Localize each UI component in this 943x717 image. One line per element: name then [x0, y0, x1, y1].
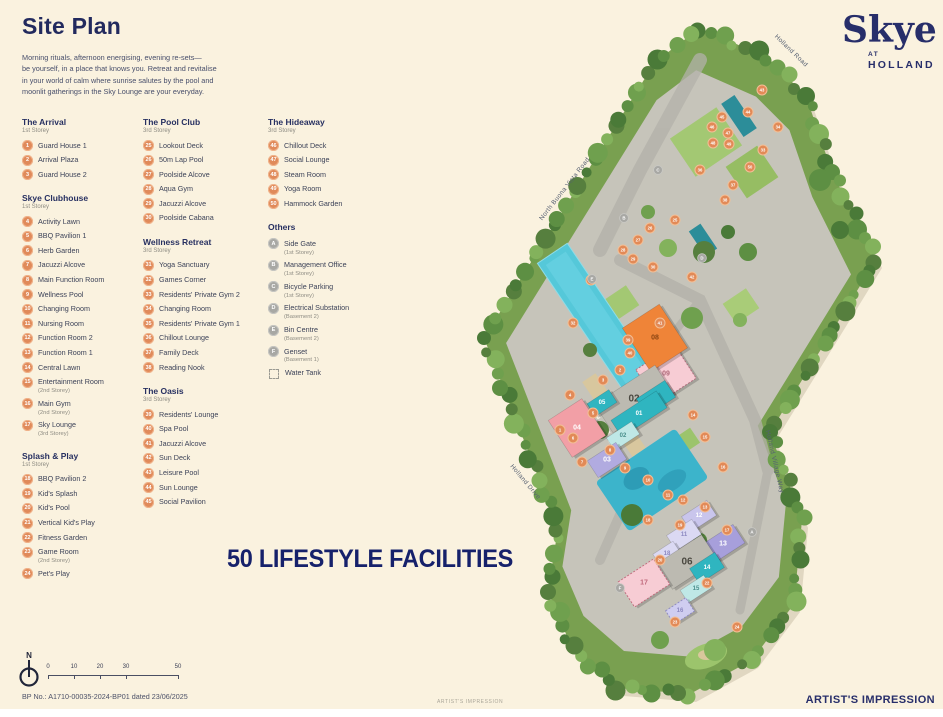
- legend-item-label: Main Function Room: [38, 275, 104, 285]
- svg-text:19: 19: [678, 523, 683, 528]
- scale-tick: [100, 675, 101, 679]
- legend-marker: 19: [22, 488, 33, 499]
- facility-dot-27: [633, 235, 643, 245]
- block-06: 06: [656, 534, 721, 592]
- legend-item: 27Poolside Alcove: [143, 169, 265, 180]
- legend-item: 29Jacuzzi Alcove: [143, 198, 265, 209]
- svg-text:C: C: [656, 168, 660, 173]
- legend-marker: 42: [143, 453, 154, 464]
- legend-marker: 41: [143, 438, 154, 449]
- scale-tick-label: 50: [175, 664, 182, 670]
- legend-item-label: BBQ Pavilion 2: [38, 474, 86, 484]
- legend-item: 18BBQ Pavilion 2: [22, 474, 140, 485]
- legend-item-label: Guard House 2: [38, 169, 87, 179]
- legend-item-label: Yoga Sanctuary: [159, 260, 209, 270]
- facility-dot-48: [708, 138, 718, 148]
- legend-marker: 9: [22, 289, 33, 300]
- svg-text:N: N: [26, 651, 32, 660]
- legend-marker: B: [268, 260, 279, 271]
- facility-dot-44: [743, 107, 753, 117]
- facility-dot-36: [695, 165, 705, 175]
- facility-dot-5: [588, 408, 598, 418]
- legend-item: 19Kid's Splash: [22, 488, 140, 499]
- residential-blocks: 090802100501040203121113180614151716: [548, 303, 748, 627]
- legend-item-label: Poolside Cabana: [159, 213, 214, 223]
- svg-text:16: 16: [677, 608, 684, 614]
- svg-text:13: 13: [703, 505, 708, 510]
- svg-text:20: 20: [658, 558, 663, 563]
- legend-marker: 8: [22, 275, 33, 286]
- road-label: Holland Road: [773, 33, 809, 68]
- svg-text:11: 11: [681, 532, 688, 538]
- legend-marker: 7: [22, 260, 33, 271]
- svg-text:22: 22: [705, 581, 710, 586]
- svg-text:45: 45: [720, 115, 725, 120]
- legend-marker: 22: [22, 532, 33, 543]
- facility-dot-17: [722, 525, 732, 535]
- svg-text:09: 09: [662, 371, 670, 378]
- artist-impression-label: ARTIST'S IMPRESSION: [806, 694, 935, 706]
- legend-item-label: Vertical Kid's Play: [38, 518, 95, 528]
- facility-dot-1: [555, 425, 565, 435]
- legend-item-label: Water Tank: [285, 368, 321, 378]
- page-title: Site Plan: [22, 13, 121, 40]
- legend-item-note: (3rd Storey): [38, 431, 76, 438]
- legend-item: 44Sun Lounge: [143, 482, 265, 493]
- legend-marker: 17: [22, 420, 33, 431]
- block-01: 01: [611, 390, 670, 440]
- legend-item-label: Residents' Private Gym 1: [159, 318, 240, 328]
- legend-item: 36Chillout Lounge: [143, 333, 265, 344]
- svg-text:23: 23: [673, 620, 678, 625]
- legend-marker: 23: [22, 547, 33, 558]
- scale-tick-label: 0: [46, 664, 49, 670]
- artist-impression-note: ARTIST'S IMPRESSION: [437, 699, 503, 705]
- legend-group-title: Splash & Play: [22, 451, 140, 461]
- intro-text: Morning rituals, afternoon energising, e…: [22, 52, 252, 97]
- svg-text:02: 02: [620, 433, 627, 439]
- legend-item: 31Yoga Sanctuary: [143, 260, 265, 271]
- facility-dot-50: [745, 162, 755, 172]
- svg-text:34: 34: [776, 125, 781, 130]
- facility-dot-14: [688, 410, 698, 420]
- legend-item-note: (1st Storey): [284, 250, 316, 257]
- legend-item: 3Guard House 2: [22, 169, 140, 180]
- facility-dot-8: [605, 445, 615, 455]
- tree-border: [477, 23, 882, 705]
- facility-dot-40: [625, 348, 635, 358]
- legend-group-title: The Pool Club: [143, 117, 265, 127]
- legend-item-note: (Basement 2): [284, 314, 349, 321]
- legend-marker: 30: [143, 213, 154, 224]
- legend-item-other: ASide Gate(1st Storey): [268, 238, 396, 256]
- legend-marker: 33: [143, 289, 154, 300]
- legend-item: 39Residents' Lounge: [143, 409, 265, 420]
- svg-text:26: 26: [648, 226, 653, 231]
- other-marker-F: [616, 584, 625, 593]
- svg-text:27: 27: [636, 238, 641, 243]
- svg-text:12: 12: [681, 498, 686, 503]
- legend-marker: 16: [22, 398, 33, 409]
- legend-item: 13Function Room 1: [22, 348, 140, 359]
- svg-text:17: 17: [640, 580, 648, 587]
- road-label: Holland Village Way: [764, 429, 785, 494]
- facility-dot-4: [565, 390, 575, 400]
- legend-item-label: Hammock Garden: [284, 198, 342, 208]
- facility-dot-32: [568, 318, 578, 328]
- legend-item-label: Wellness Pool: [38, 289, 83, 299]
- legend-item-label: Nursing Room: [38, 318, 84, 328]
- road-labels: Holland RoadNorth Buona Vista RoadHollan…: [508, 33, 809, 501]
- facility-dot-6: [568, 433, 578, 443]
- lawns: [603, 107, 779, 675]
- legend-marker: 40: [143, 424, 154, 435]
- bottom-strip: [0, 709, 943, 717]
- block-12: 12: [682, 499, 720, 534]
- legend-group-title: The Oasis: [143, 386, 265, 396]
- legend-item-label: Bin Centre(Basement 2): [284, 325, 319, 343]
- legend-marker: 4: [22, 216, 33, 227]
- block-16: 16: [666, 597, 698, 627]
- legend-item: 17Sky Lounge(3rd Storey): [22, 420, 140, 438]
- svg-text:F: F: [619, 586, 622, 591]
- block-05: 05: [587, 389, 620, 419]
- logo: Skye AT HOLLAND: [842, 12, 938, 71]
- facility-dot-49: [724, 139, 734, 149]
- block-02: 02: [595, 364, 677, 435]
- legend-marker: 24: [22, 568, 33, 579]
- legend-item: 2Arrival Plaza: [22, 155, 140, 166]
- block-02: 02: [606, 420, 643, 453]
- legend-item-label: Genset(Basement 1): [284, 346, 319, 364]
- block-17: 17: [618, 558, 673, 610]
- legend-item-label: Arrival Plaza: [38, 155, 78, 165]
- facility-dot-10: [643, 475, 653, 485]
- svg-text:47: 47: [726, 131, 731, 136]
- block-18: 18: [653, 540, 685, 569]
- legend-item-other: DElectrical Substation(Basement 2): [268, 303, 396, 321]
- svg-text:46: 46: [710, 125, 715, 130]
- block-13: 13: [701, 523, 748, 566]
- legend-item: 11Nursing Room: [22, 318, 140, 329]
- svg-text:30: 30: [651, 265, 656, 270]
- legend-item-label: Central Lawn: [38, 362, 80, 372]
- road-label: North Buona Vista Road: [538, 156, 591, 221]
- legend-marker: 18: [22, 474, 33, 485]
- legend-item: 23Game Room(2nd Storey): [22, 547, 140, 565]
- facility-dot-16: [718, 462, 728, 472]
- legend-marker: 49: [268, 184, 279, 195]
- scale-tick: [178, 675, 179, 679]
- legend-item: 48Steam Room: [268, 169, 396, 180]
- legend-marker: 35: [143, 318, 154, 329]
- svg-text:03: 03: [603, 457, 611, 464]
- legend-marker: 36: [143, 333, 154, 344]
- svg-text:E: E: [591, 277, 594, 282]
- facility-dot-24: [732, 622, 742, 632]
- scale-tick-label: 30: [123, 664, 130, 670]
- legend-marker: C: [268, 281, 279, 292]
- legend-group: Splash & Play1st Storey18BBQ Pavilion 21…: [22, 451, 140, 580]
- facility-dot-33: [758, 145, 768, 155]
- svg-text:36: 36: [698, 168, 703, 173]
- legend-marker: 28: [143, 184, 154, 195]
- legend-item: 21Vertical Kid's Play: [22, 518, 140, 529]
- facility-dot-18: [643, 515, 653, 525]
- legend-item: 25Lookout Deck: [143, 140, 265, 151]
- svg-text:44: 44: [746, 110, 751, 115]
- facility-dot-7: [577, 457, 587, 467]
- legend-item-label: 50m Lap Pool: [159, 155, 203, 165]
- legend-item-other: CBicycle Parking(1st Storey): [268, 281, 396, 299]
- svg-text:40: 40: [628, 351, 633, 356]
- legend-item: 28Aqua Gym: [143, 184, 265, 195]
- north-arrow-icon: N: [16, 650, 42, 688]
- svg-text:15: 15: [703, 435, 708, 440]
- svg-text:48: 48: [711, 141, 716, 146]
- legend-item-label: Family Deck: [159, 348, 199, 358]
- legend-item: 46Chillout Deck: [268, 140, 396, 151]
- legend-item: 16Main Gym(2nd Storey): [22, 398, 140, 416]
- legend-marker: D: [268, 303, 279, 314]
- legend-group-storey: 1st Storey: [22, 128, 140, 134]
- logo-holland: HOLLAND: [868, 59, 938, 71]
- legend-item-label: Social Lounge: [284, 155, 330, 165]
- legend-item-note: (Basement 1): [284, 357, 319, 364]
- legend-marker: 21: [22, 518, 33, 529]
- legend-item-label: Entertainment Room(2nd Storey): [38, 377, 104, 395]
- bp-number: BP No.: A1710-00035-2024-BP01 dated 23/0…: [22, 692, 188, 701]
- svg-text:7: 7: [581, 460, 584, 465]
- legend-group-title: Wellness Retreat: [143, 237, 265, 247]
- legend-item: 5BBQ Pavilion 1: [22, 231, 140, 242]
- facility-dot-46: [707, 122, 717, 132]
- legend-item-label: Sky Lounge(3rd Storey): [38, 420, 76, 438]
- svg-text:16: 16: [721, 465, 726, 470]
- scale-tick: [48, 675, 49, 679]
- legend-item: 37Family Deck: [143, 348, 265, 359]
- block-10: 10: [636, 379, 679, 418]
- legend-item-label: Management Office(1st Storey): [284, 260, 347, 278]
- legend-group-title: Others: [268, 222, 396, 232]
- legend-item-label: Residents' Private Gym 2: [159, 289, 240, 299]
- svg-text:50: 50: [748, 165, 753, 170]
- block-14: 14: [690, 551, 728, 586]
- facility-dot-25: [670, 215, 680, 225]
- site-boundary: [484, 28, 876, 694]
- legend-marker: 34: [143, 304, 154, 315]
- svg-text:01: 01: [636, 411, 643, 417]
- legend-marker: 27: [143, 169, 154, 180]
- legend-column-3: The Hideaway3rd Storey46Chillout Deck47S…: [268, 117, 396, 392]
- svg-text:5: 5: [592, 411, 595, 416]
- svg-text:12: 12: [696, 513, 703, 519]
- legend-item-label: Aqua Gym: [159, 184, 193, 194]
- facility-markers: 4344454647484950343336373825262728293042…: [555, 85, 783, 632]
- block-03: 03: [587, 441, 630, 480]
- legend-column-2: The Pool Club3rd Storey25Lookout Deck265…: [143, 117, 265, 521]
- facility-dot-42: [687, 272, 697, 282]
- legend-marker: 5: [22, 231, 33, 242]
- facility-dot-12: [678, 495, 688, 505]
- pools: [537, 95, 756, 532]
- facility-dot-47: [723, 128, 733, 138]
- svg-text:17: 17: [725, 528, 730, 533]
- legend-group-storey: 3rd Storey: [143, 248, 265, 254]
- legend-item-label: Fitness Garden: [38, 532, 87, 542]
- svg-text:6: 6: [572, 436, 575, 441]
- legend-item-label: Bicycle Parking(1st Storey): [284, 281, 333, 299]
- legend-item-other: EBin Centre(Basement 2): [268, 325, 396, 343]
- legend-item-label: Game Room(2nd Storey): [38, 547, 79, 565]
- other-marker-D: [698, 254, 707, 263]
- legend-group-storey: 1st Storey: [22, 462, 140, 468]
- svg-text:4: 4: [569, 393, 572, 398]
- legend-item: 30Poolside Cabana: [143, 213, 265, 224]
- legend-marker: 29: [143, 198, 154, 209]
- svg-text:13: 13: [719, 541, 727, 548]
- legend-item-label: Jacuzzi Alcove: [38, 260, 85, 270]
- legend-marker: 3: [22, 169, 33, 180]
- block-09: 09: [636, 344, 700, 406]
- svg-text:49: 49: [727, 142, 732, 147]
- logo-at: AT: [868, 51, 938, 58]
- facilities-banner: 50 LIFESTYLE FACILITIES: [227, 545, 531, 574]
- facility-dot-11: [663, 490, 673, 500]
- legend-marker: 44: [143, 482, 154, 493]
- facility-dot-43: [757, 85, 767, 95]
- legend-item-label: Steam Room: [284, 169, 326, 179]
- legend-item-label: Sun Deck: [159, 453, 190, 463]
- legend-marker: 47: [268, 155, 279, 166]
- facility-dot-31: [586, 275, 596, 285]
- legend-marker: 45: [143, 497, 154, 508]
- legend-marker: 37: [143, 348, 154, 359]
- legend-item-other: FGenset(Basement 1): [268, 346, 396, 364]
- legend-item-label: Electrical Substation(Basement 2): [284, 303, 349, 321]
- svg-text:10: 10: [646, 478, 651, 483]
- legend-item-label: Chillout Deck: [284, 140, 326, 150]
- scale-tick: [126, 675, 127, 679]
- legend-group-title: Skye Clubhouse: [22, 193, 140, 203]
- legend-item-label: Yoga Room: [284, 184, 321, 194]
- svg-text:2: 2: [619, 368, 622, 373]
- internal-paths: [600, 60, 768, 610]
- legend-item: 12Function Room 2: [22, 333, 140, 344]
- svg-text:18: 18: [664, 551, 671, 557]
- legend-item-label: Reading Nook: [159, 362, 205, 372]
- legend-item: 14Central Lawn: [22, 362, 140, 373]
- svg-text:43: 43: [760, 88, 765, 93]
- legend-marker: 20: [22, 503, 33, 514]
- legend-item: 15Entertainment Room(2nd Storey): [22, 377, 140, 395]
- svg-text:11: 11: [666, 493, 671, 498]
- legend-item: 1Guard House 1: [22, 140, 140, 151]
- scale-bar: 010203050: [48, 664, 178, 684]
- legend-item-label: Jacuzzi Alcove: [159, 198, 206, 208]
- facility-dot-30: [648, 262, 658, 272]
- legend-group-storey: 3rd Storey: [143, 128, 265, 134]
- legend-item: 10Changing Room: [22, 304, 140, 315]
- legend-marker: 31: [143, 260, 154, 271]
- legend-item-label: Function Room 1: [38, 348, 93, 358]
- legend-item: 41Jacuzzi Alcove: [143, 438, 265, 449]
- svg-text:A: A: [750, 530, 754, 535]
- legend-item-label: Poolside Alcove: [159, 169, 210, 179]
- legend-item: 20Kid's Pool: [22, 503, 140, 514]
- legend-item-label: Residents' Lounge: [159, 409, 218, 419]
- legend-item: 22Fitness Garden: [22, 532, 140, 543]
- legend-item: 34Changing Room: [143, 304, 265, 315]
- block-11: 11: [667, 518, 705, 553]
- facility-dot-22: [702, 578, 712, 588]
- legend-item-note: (1st Storey): [284, 293, 333, 300]
- legend-marker: 38: [143, 362, 154, 373]
- north-indicator: N: [16, 650, 42, 688]
- legend-item: 49Yoga Room: [268, 184, 396, 195]
- svg-text:24: 24: [735, 625, 740, 630]
- legend-marker: 14: [22, 362, 33, 373]
- legend-marker: 25: [143, 140, 154, 151]
- facility-dot-2: [615, 365, 625, 375]
- legend-marker: 13: [22, 348, 33, 359]
- legend-item-label: Kid's Splash: [38, 488, 77, 498]
- svg-text:31: 31: [589, 278, 594, 283]
- other-marker-A: [748, 528, 757, 537]
- facility-dot-26: [645, 223, 655, 233]
- legend-item-note: (Basement 2): [284, 336, 319, 343]
- svg-text:B: B: [622, 216, 625, 221]
- svg-text:D: D: [700, 256, 703, 261]
- legend-marker: 43: [143, 468, 154, 479]
- svg-text:14: 14: [691, 413, 696, 418]
- legend-item: 32Games Corner: [143, 275, 265, 286]
- facility-dot-13: [700, 502, 710, 512]
- legend-item: 35Residents' Private Gym 1: [143, 318, 265, 329]
- road-label: Holland Drive: [508, 463, 541, 501]
- legend-group-title: The Arrival: [22, 117, 140, 127]
- legend-group: The Arrival1st Storey1Guard House 12Arri…: [22, 117, 140, 180]
- svg-text:25: 25: [673, 218, 678, 223]
- legend-item-label: Chillout Lounge: [159, 333, 209, 343]
- legend-item-label: Changing Room: [159, 304, 211, 314]
- svg-text:39: 39: [626, 338, 631, 343]
- site-plan-page: 0908021005010402031211131806141517164344…: [0, 0, 943, 717]
- svg-text:05: 05: [599, 400, 606, 406]
- facility-dot-3: [598, 375, 608, 385]
- legend-group: The Oasis3rd Storey39Residents' Lounge40…: [143, 386, 265, 508]
- scale-tick-label: 20: [97, 664, 104, 670]
- facility-dot-39: [623, 335, 633, 345]
- svg-text:28: 28: [621, 248, 626, 253]
- legend-item-label: BBQ Pavilion 1: [38, 231, 86, 241]
- legend-marker: 15: [22, 377, 33, 388]
- legend-item-label: Leisure Pool: [159, 468, 199, 478]
- legend-item-label: Jacuzzi Alcove: [159, 438, 206, 448]
- svg-text:18: 18: [646, 518, 651, 523]
- legend-item-label: Guard House 1: [38, 140, 87, 150]
- legend-group-storey: 3rd Storey: [268, 128, 396, 134]
- block-04: 04: [548, 398, 609, 460]
- legend-item-label: Sun Lounge: [159, 482, 198, 492]
- scale-tick-label: 10: [71, 664, 78, 670]
- svg-text:38: 38: [723, 198, 728, 203]
- legend-marker: E: [268, 325, 279, 336]
- legend-item-label: Changing Room: [38, 304, 90, 314]
- facility-dot-15: [700, 432, 710, 442]
- facility-dot-20: [655, 555, 665, 565]
- legend-item: 33Residents' Private Gym 2: [143, 289, 265, 300]
